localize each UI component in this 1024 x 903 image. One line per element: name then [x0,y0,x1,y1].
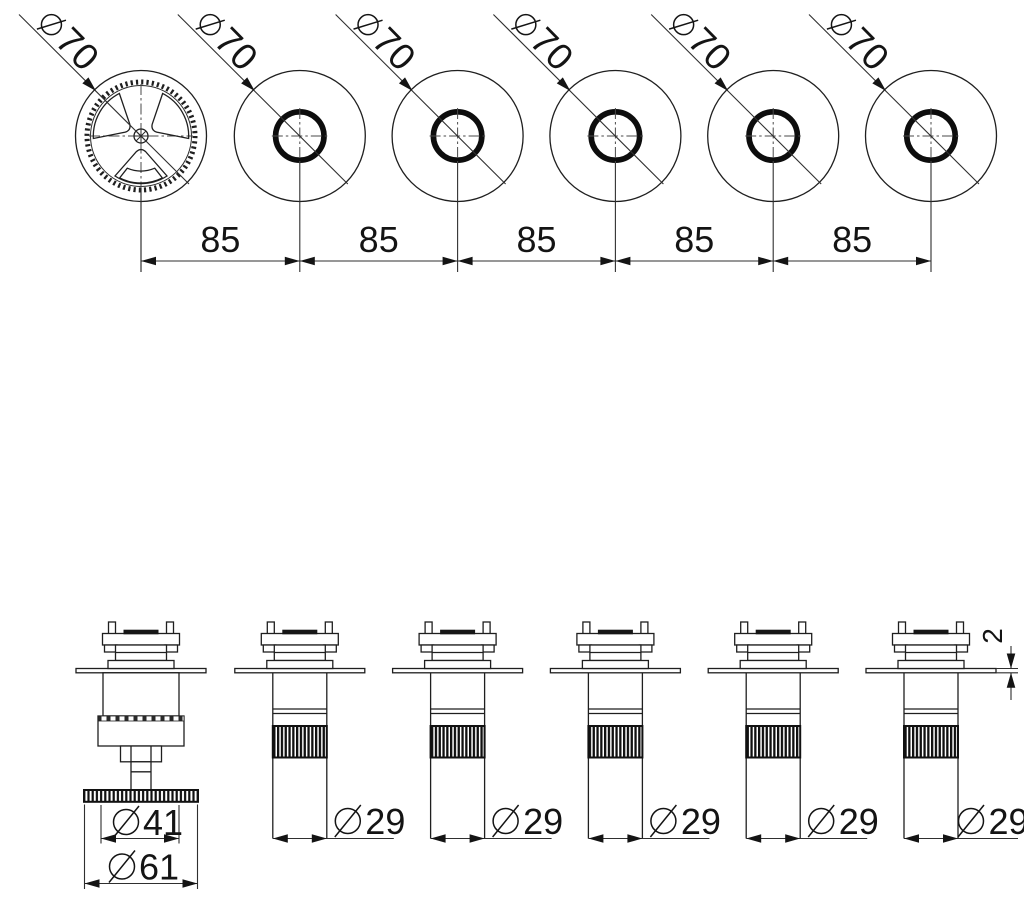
cartridge-side-1 [103,622,180,669]
escutcheon-top-view-5 [708,71,839,273]
diameter-label-top-5: 70 [663,2,740,79]
svg-text:29: 29 [989,801,1024,842]
body-diameter-dimension-3: 29 [431,801,564,843]
cartridge-side-5 [735,622,812,669]
valve-body-side-6 [904,673,958,839]
cartridge-side-2 [261,622,338,669]
valve-body-side-5 [746,673,800,839]
svg-text:2: 2 [977,628,1008,644]
svg-text:29: 29 [681,801,721,842]
svg-text:70: 70 [838,20,897,80]
body-diameter-dimension-6: 29 [904,801,1024,843]
spacing-dimension-chain: 85 85 85 85 85 [141,188,931,272]
escutcheon-top-view-6 [866,71,997,273]
diameter-label-top-1: 70 [31,2,108,79]
svg-text:70: 70 [207,20,266,80]
escutcheon-top-view-3 [392,71,523,273]
svg-text:61: 61 [139,847,179,888]
svg-text:70: 70 [522,20,581,80]
escutcheon-top-view-4 [550,71,681,273]
drawing-canvas: 70 70 70 70 70 70 [0,0,1024,903]
diameter-label-top-4: 70 [505,2,582,79]
handle-knob-diameter-dimension: 41 [101,802,183,844]
body-diameter-dimension-5: 29 [746,801,879,843]
escutcheon-top-view-2 [234,71,365,273]
spacing-dim-4: 85 [674,219,714,260]
svg-text:29: 29 [839,801,879,842]
svg-text:41: 41 [143,802,183,843]
svg-text:70: 70 [680,20,739,80]
svg-text:70: 70 [48,20,107,80]
spacing-dim-1: 85 [200,219,240,260]
valve-body-side-4 [588,673,642,839]
cartridge-side-6 [893,622,970,669]
diameter-label-top-2: 70 [190,2,267,79]
knurled-wheel-side [84,790,198,802]
valve-body-side-3 [431,673,485,839]
technical-drawing-sheet: 70 70 70 70 70 70 [0,0,1024,903]
valve-body-side-2 [273,673,327,839]
spacing-dim-3: 85 [516,219,556,260]
body-diameter-dimension-2: 29 [273,801,406,843]
handwheel-valve-side-body [84,673,198,802]
svg-text:29: 29 [523,801,563,842]
diameter-label-top-6: 70 [821,2,898,79]
diameter-label-top-3: 70 [347,2,424,79]
plate-thickness-dimension: 2 [977,628,1018,700]
svg-text:29: 29 [365,801,405,842]
spacing-dim-5: 85 [832,219,872,260]
svg-text:70: 70 [365,20,424,80]
body-diameter-dimension-4: 29 [588,801,721,843]
cartridge-side-4 [577,622,654,669]
spacing-dim-2: 85 [359,219,399,260]
cartridge-side-3 [419,622,496,669]
